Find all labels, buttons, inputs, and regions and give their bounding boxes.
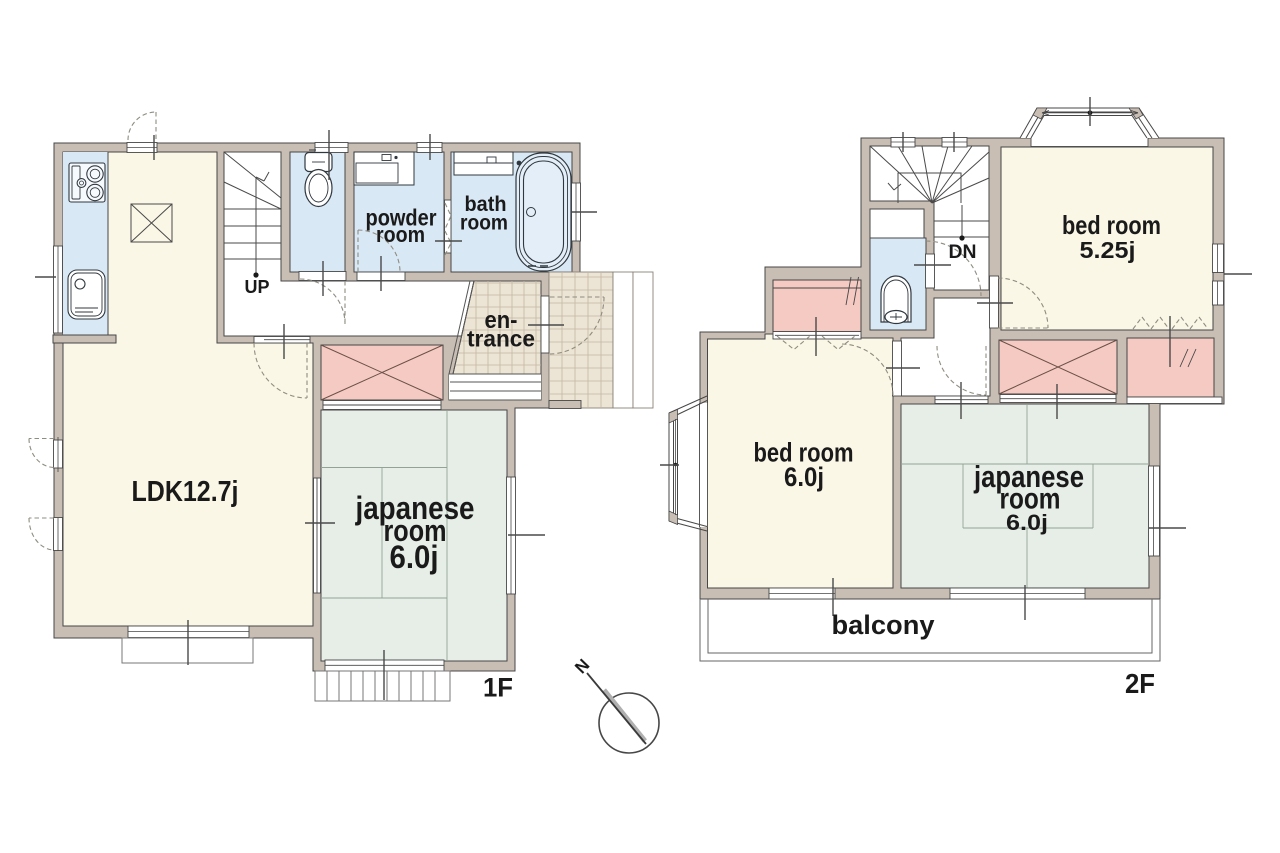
svg-text:room: room [460,212,508,235]
svg-text:LDK12.7j: LDK12.7j [132,476,239,508]
svg-text:DN: DN [949,242,977,263]
svg-text:6.0j: 6.0j [390,539,439,575]
svg-text:bed room: bed room [1062,210,1161,240]
svg-text:2F: 2F [1125,668,1155,699]
svg-text:1F: 1F [483,673,513,703]
svg-text:5.25j: 5.25j [1080,237,1136,263]
svg-text:balcony: balcony [832,610,935,640]
svg-text:room: room [376,222,425,247]
svg-text:6.0j: 6.0j [784,462,824,492]
svg-text:trance: trance [467,326,535,352]
svg-text:6.0j: 6.0j [1006,510,1048,535]
svg-text:UP: UP [245,277,270,297]
